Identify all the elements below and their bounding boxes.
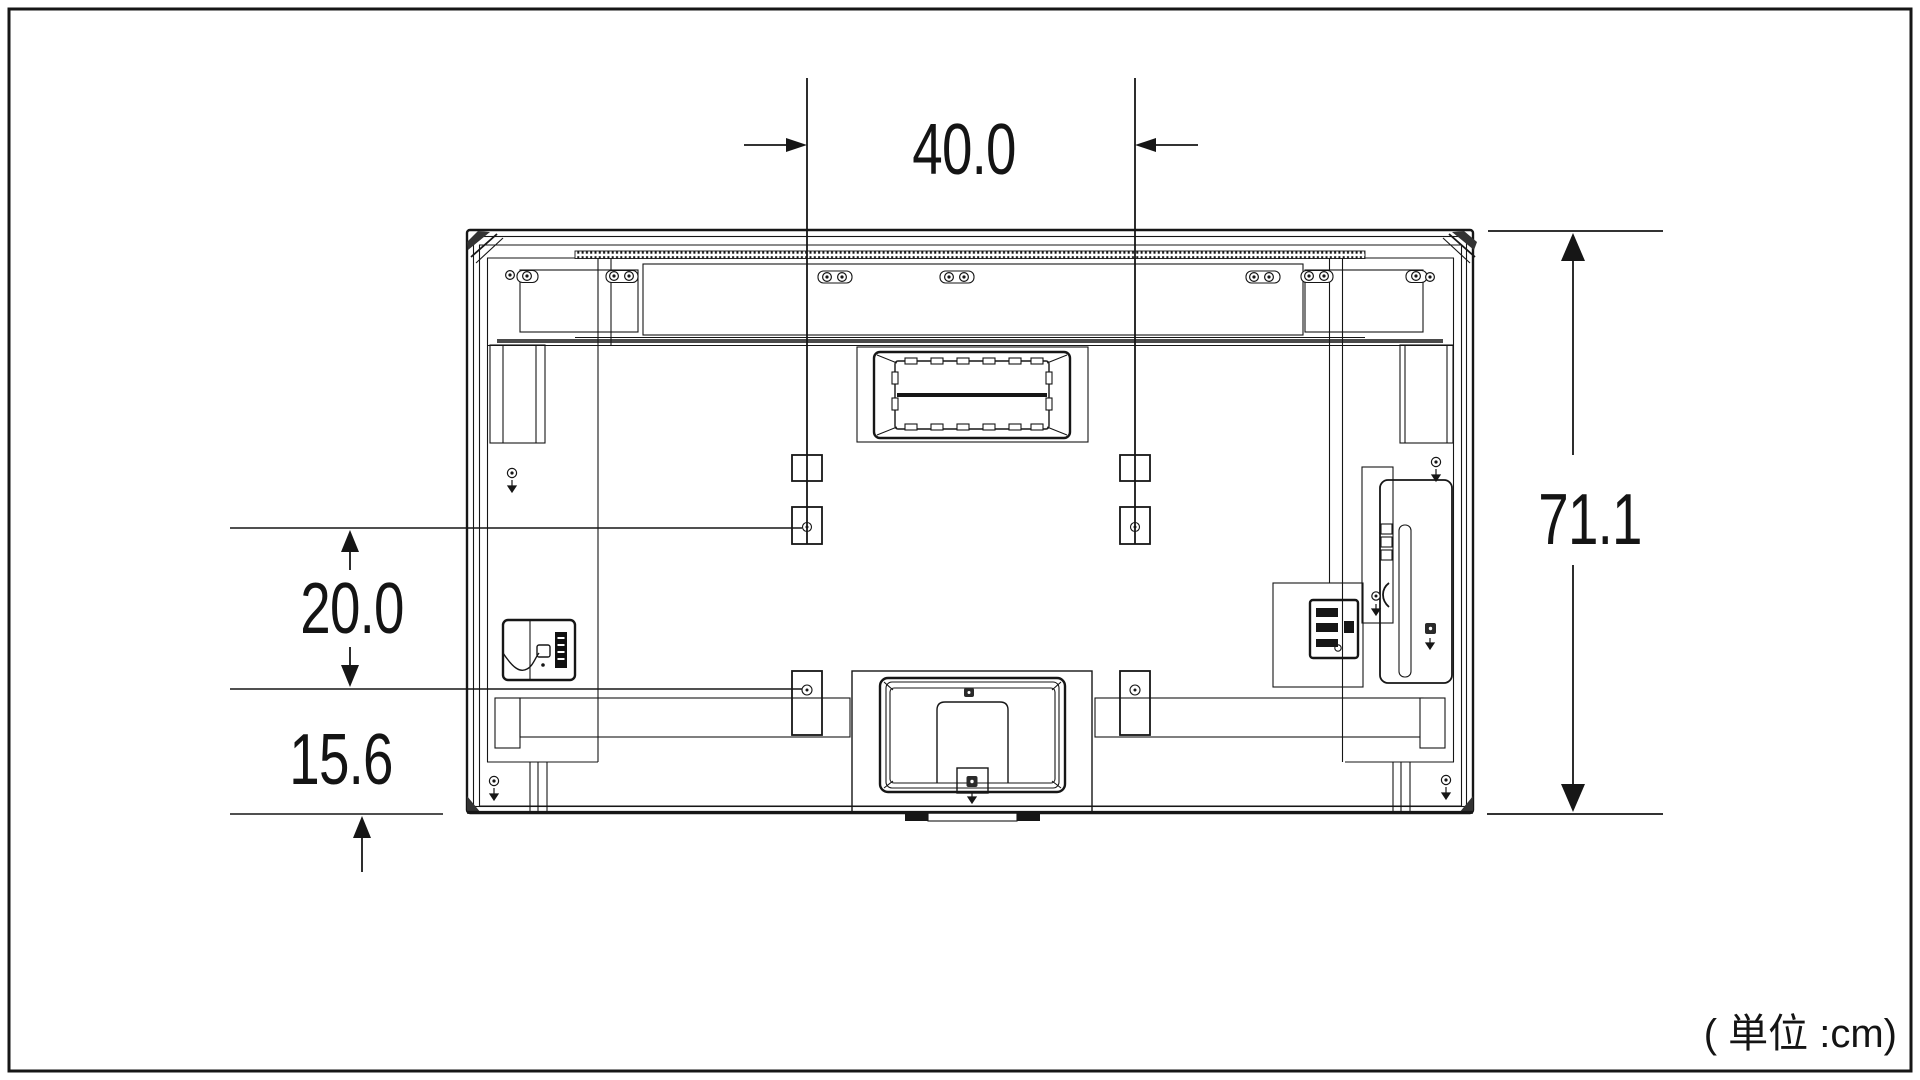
screw-icon (945, 273, 954, 282)
screw-icon (838, 273, 847, 282)
screw-icon (1305, 272, 1314, 281)
screw-icon (1412, 272, 1421, 281)
screw-icon (823, 273, 832, 282)
screw-icon (1320, 272, 1329, 281)
screw-icon (1372, 592, 1380, 600)
screw-icon (625, 272, 634, 281)
screw-icon (1250, 273, 1259, 282)
screw-icon (1431, 457, 1440, 466)
dimension-label-height: 71.1 (1538, 479, 1641, 561)
screw-icon (523, 272, 532, 281)
screw-icon (610, 272, 619, 281)
screw-icon (1441, 775, 1450, 784)
screw-icon (1265, 273, 1274, 282)
dimension-label-row-spacing: 20.0 (300, 568, 403, 650)
screw-icon (506, 271, 515, 280)
stand-foot-left (905, 813, 929, 822)
vent-bottom-band (497, 339, 1443, 343)
dimension-label-hole-spacing: 40.0 (912, 109, 1015, 191)
bottom-right-vent-cap (1420, 698, 1445, 748)
bottom-left-vent-cap (495, 698, 520, 748)
stand-foot-right (1016, 813, 1040, 822)
technical-drawing-page: 40.0 71.1 20.0 15.6 ( 単位 :cm) (0, 0, 1920, 1080)
terminal-slot (1399, 525, 1411, 677)
dimension-label-bottom-offset: 15.6 (289, 719, 392, 801)
screw-icon (960, 273, 969, 282)
unit-note: ( 単位 :cm) (1704, 1001, 1897, 1059)
screw-icon (507, 468, 516, 477)
top-perforation-strip (575, 251, 1365, 259)
screw-icon (489, 776, 498, 785)
screw-icon (1426, 273, 1435, 282)
